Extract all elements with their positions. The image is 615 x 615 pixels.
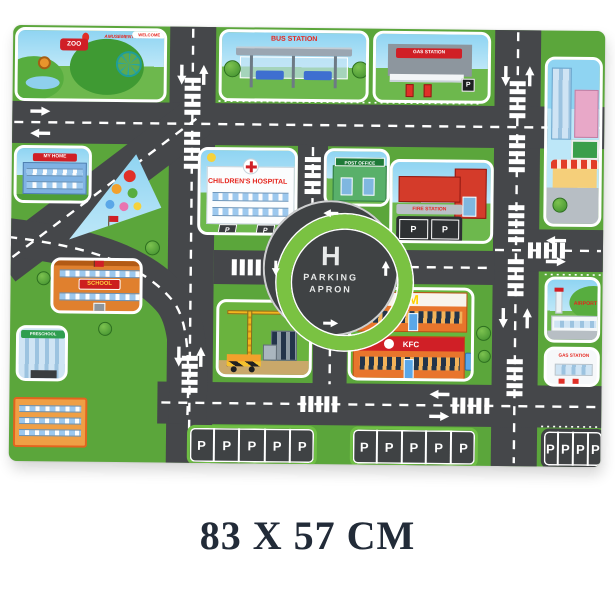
door: [462, 197, 476, 217]
welcome-banner: WELCOME: [132, 31, 166, 38]
windows: [27, 168, 83, 177]
tree-icon: [552, 198, 567, 213]
bench: [304, 71, 332, 80]
storefront: [555, 364, 593, 376]
apartment-building: [13, 397, 88, 448]
parking-stall: P: [190, 428, 214, 462]
control-tower-icon: [555, 290, 562, 314]
parking-sign: P: [462, 79, 475, 92]
gas-station-top-block: GAS STATION P: [373, 31, 492, 104]
parking-stall: P: [399, 219, 428, 239]
pink-building: [574, 90, 599, 138]
parking-stall: P: [431, 219, 460, 239]
flag-icon: [109, 216, 118, 222]
parking-stall: P: [572, 432, 587, 466]
parking-stall: P: [376, 430, 401, 464]
parking-stall: P: [587, 432, 602, 466]
glass-tower: [551, 68, 572, 140]
parking-stall: P: [400, 430, 425, 464]
parking-lot-center: P P P P P: [350, 426, 478, 467]
post-office-block: POST OFFICE: [323, 148, 390, 207]
gas-station-bottom-sign: GAS STATION: [549, 354, 599, 359]
parking-lot-left: P P P P P: [187, 425, 317, 466]
post-office-sign: POST OFFICE: [335, 157, 385, 167]
runway-apron: [547, 331, 597, 341]
zoo-sign: ZOO: [60, 38, 88, 50]
door: [404, 359, 414, 379]
helipad-word-1: PARKING: [303, 271, 358, 282]
bench: [256, 70, 284, 79]
parking-stall: P: [450, 431, 475, 465]
shop-awning: [551, 160, 599, 170]
phone-booth-icon: [465, 353, 475, 371]
my-home-block: MY HOME: [13, 145, 92, 204]
parking-stall: P: [425, 430, 450, 464]
my-home-sign: MY HOME: [33, 153, 77, 161]
helipad-text: H PARKING APRON: [262, 200, 399, 337]
fuel-pump-icon: [406, 84, 414, 97]
red-cross-icon: [243, 158, 259, 174]
windows: [27, 181, 83, 190]
sun-icon: [207, 153, 216, 162]
parking-stall: P: [238, 428, 264, 462]
airport-sign: AIRPORT: [569, 302, 600, 308]
fuel-pump-icon: [573, 379, 579, 387]
fuel-pump-icon: [559, 379, 565, 387]
shelter-post: [250, 55, 253, 87]
fire-station-sign: FIRE STATION: [396, 204, 462, 215]
balloon-icon: [124, 170, 136, 182]
door: [363, 178, 375, 196]
school-door: [93, 303, 105, 315]
tree-icon: [145, 240, 160, 255]
entrance: [31, 370, 57, 378]
preschool-block: PRESCHOOL: [16, 325, 69, 382]
helipad-word-2: APRON: [309, 284, 352, 294]
door: [341, 177, 353, 195]
balloon-icon: [119, 202, 128, 211]
school-block: SCHOOL: [50, 257, 143, 314]
fire-station-parking: P P: [396, 216, 462, 243]
windows: [60, 269, 140, 278]
gas-station-sign: GAS STATION: [396, 48, 462, 59]
balloon-icon: [112, 184, 122, 194]
parking-stall: P: [289, 429, 315, 463]
tree-icon: [352, 61, 369, 78]
tree-icon: [37, 271, 51, 285]
hospital-sign: CHILDREN'S HOSPITAL: [201, 178, 295, 186]
billboard: [571, 140, 599, 160]
city-play-mat: ZOO AMUSEMENT PARK WELCOME BUS STATION G…: [9, 25, 606, 467]
shelter-post: [334, 56, 337, 88]
balloon-icon: [105, 200, 114, 209]
tree-icon: [478, 350, 491, 363]
windows: [19, 405, 81, 413]
school-sign: SCHOOL: [79, 279, 121, 290]
preschool-sign: PRESCHOOL: [21, 330, 65, 338]
gas-station-bottom-block: GAS STATION: [544, 346, 600, 387]
parking-lot-right: P P P P: [541, 428, 605, 467]
windows: [59, 292, 139, 301]
product-photo: ZOO AMUSEMENT PARK WELCOME BUS STATION G…: [0, 0, 615, 615]
lion-icon: [38, 56, 51, 69]
parking-stall: P: [213, 428, 239, 462]
tree-icon: [476, 326, 491, 341]
helipad-roundabout: H PARKING APRON: [262, 200, 399, 337]
colonel-icon: [384, 339, 394, 349]
fuel-pump-icon: [424, 84, 432, 97]
door: [408, 313, 418, 331]
tree-icon: [98, 322, 112, 336]
ferris-wheel-icon: [116, 51, 142, 77]
small-building: [263, 345, 277, 361]
balloon-icon: [133, 202, 141, 210]
gas-canopy: [390, 74, 464, 83]
parking-ramp: P: [217, 224, 237, 236]
wheel-icon: [231, 366, 237, 372]
zoo-amusement-park-block: ZOO AMUSEMENT PARK WELCOME: [15, 27, 168, 103]
terminal-building: [551, 316, 599, 333]
windows: [19, 429, 81, 437]
tree-icon: [224, 60, 241, 77]
helipad-letter: H: [321, 243, 341, 270]
parking-stall: P: [353, 429, 376, 463]
construction-truck-icon: [227, 354, 261, 366]
airport-block: AIRPORT: [544, 276, 601, 343]
pond: [26, 76, 60, 89]
parking-stall: P: [263, 429, 289, 463]
kfc-sign: KFC: [398, 339, 424, 350]
mall-street-block: [543, 56, 603, 227]
balloon-icon: [127, 188, 137, 198]
hedge: [16, 194, 92, 204]
fire-station-block: FIRE STATION P P: [389, 159, 494, 244]
parking-stall: P: [544, 431, 557, 465]
bus-station-sign: BUS STATION: [222, 35, 366, 44]
size-caption: 83 X 57 CM: [0, 512, 615, 559]
fire-station-building: [398, 176, 460, 203]
my-home-building: [23, 162, 87, 195]
shelter-post: [292, 56, 295, 88]
wheel-icon: [249, 366, 255, 372]
bus-station-block: BUS STATION: [219, 29, 370, 103]
windows: [19, 417, 81, 425]
parking-stall: P: [557, 432, 572, 466]
china-flag-icon: [94, 260, 104, 267]
